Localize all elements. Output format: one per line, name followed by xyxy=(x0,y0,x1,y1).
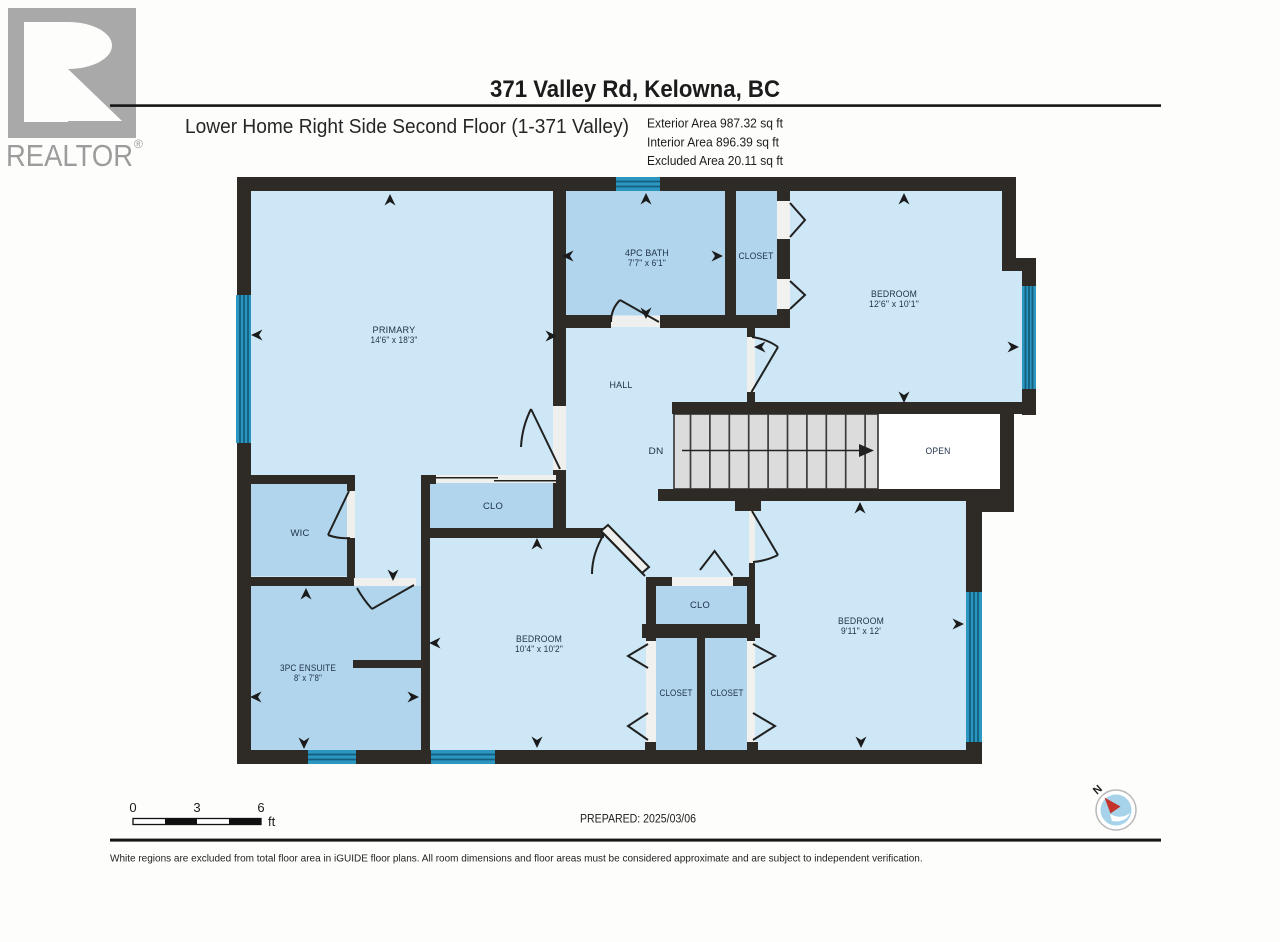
svg-text:371 Valley Rd, Kelowna, BC: 371 Valley Rd, Kelowna, BC xyxy=(490,76,780,103)
svg-text:HALL: HALL xyxy=(610,380,633,390)
svg-text:4PC BATH: 4PC BATH xyxy=(625,248,669,258)
svg-text:3: 3 xyxy=(193,800,200,815)
svg-text:0: 0 xyxy=(129,800,136,815)
svg-text:CLO: CLO xyxy=(690,600,710,610)
svg-text:6: 6 xyxy=(257,800,264,815)
svg-text:CLOSET: CLOSET xyxy=(711,688,744,698)
svg-text:ft: ft xyxy=(268,814,276,829)
svg-text:CLOSET: CLOSET xyxy=(739,251,774,261)
svg-text:12'6" x 10'1": 12'6" x 10'1" xyxy=(869,299,919,309)
svg-text:CLO: CLO xyxy=(483,501,503,511)
svg-text:Exterior Area 987.32 sq ft: Exterior Area 987.32 sq ft xyxy=(647,117,783,131)
svg-text:7'7" x 6'1": 7'7" x 6'1" xyxy=(628,258,666,268)
svg-text:BEDROOM: BEDROOM xyxy=(871,289,917,299)
svg-text:White regions are excluded fro: White regions are excluded from total fl… xyxy=(110,854,923,865)
svg-text:Excluded Area 20.11 sq ft: Excluded Area 20.11 sq ft xyxy=(647,154,784,168)
svg-text:8' x 7'8": 8' x 7'8" xyxy=(294,673,322,683)
svg-text:10'4" x 10'2": 10'4" x 10'2" xyxy=(515,644,563,654)
svg-text:REALTOR: REALTOR xyxy=(6,138,133,173)
svg-text:9'11" x 12': 9'11" x 12' xyxy=(841,626,881,636)
svg-text:®: ® xyxy=(134,137,143,151)
svg-text:DN: DN xyxy=(649,446,664,456)
svg-text:BEDROOM: BEDROOM xyxy=(516,634,562,644)
svg-text:WIC: WIC xyxy=(291,528,310,538)
svg-text:3PC ENSUITE: 3PC ENSUITE xyxy=(280,663,336,673)
svg-text:Interior Area 896.39 sq ft: Interior Area 896.39 sq ft xyxy=(647,135,780,149)
svg-text:14'6" x 18'3": 14'6" x 18'3" xyxy=(371,335,418,345)
svg-text:BEDROOM: BEDROOM xyxy=(838,616,884,626)
svg-text:OPEN: OPEN xyxy=(926,446,951,456)
svg-text:PREPARED: 2025/03/06: PREPARED: 2025/03/06 xyxy=(580,814,696,826)
svg-text:CLOSET: CLOSET xyxy=(660,688,693,698)
svg-text:Lower Home Right Side Second F: Lower Home Right Side Second Floor (1-37… xyxy=(185,116,629,138)
svg-text:PRIMARY: PRIMARY xyxy=(373,325,416,335)
